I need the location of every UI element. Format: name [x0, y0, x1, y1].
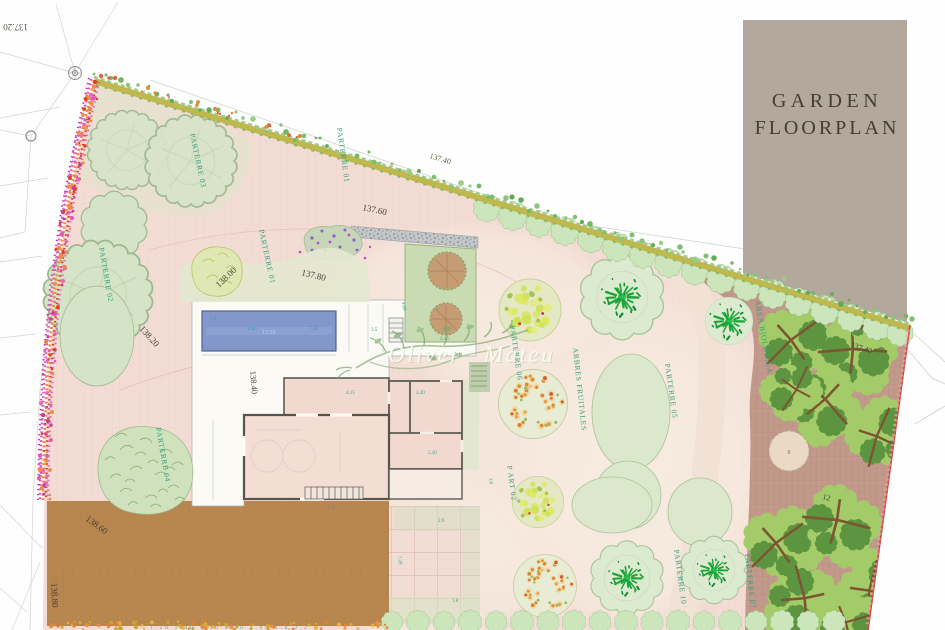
svg-text:FLOORPLAN: FLOORPLAN: [755, 117, 900, 139]
svg-text:1.8: 1.8: [452, 599, 459, 604]
svg-text:7.50: 7.50: [309, 327, 318, 332]
svg-text:8: 8: [788, 450, 791, 456]
svg-text:138.40: 138.40: [248, 370, 260, 394]
svg-text:Mateu: Mateu: [483, 342, 555, 367]
svg-text:2.9: 2.9: [438, 519, 445, 524]
svg-text:137.20: 137.20: [3, 22, 28, 32]
svg-text:13.50: 13.50: [262, 330, 276, 336]
svg-text:1.2: 1.2: [210, 317, 217, 322]
svg-text:4.15: 4.15: [346, 391, 355, 396]
svg-text:GARDEN: GARDEN: [772, 90, 882, 112]
svg-text:2.00: 2.00: [248, 327, 257, 332]
svg-text:4.4: 4.4: [328, 506, 335, 511]
svg-text:5.10: 5.10: [428, 451, 437, 456]
svg-text:138.80: 138.80: [49, 583, 60, 609]
svg-text:3.0: 3.0: [487, 478, 493, 485]
svg-text:1.50 2.40 3.10 2.20 4.60: 1.50 2.40 3.10 2.20 4.60 1.8 2.2: [150, 626, 310, 630]
svg-text:3.20: 3.20: [416, 391, 425, 396]
svg-text:Oliver: Oliver: [388, 342, 462, 367]
svg-text:3.5: 3.5: [371, 328, 378, 333]
